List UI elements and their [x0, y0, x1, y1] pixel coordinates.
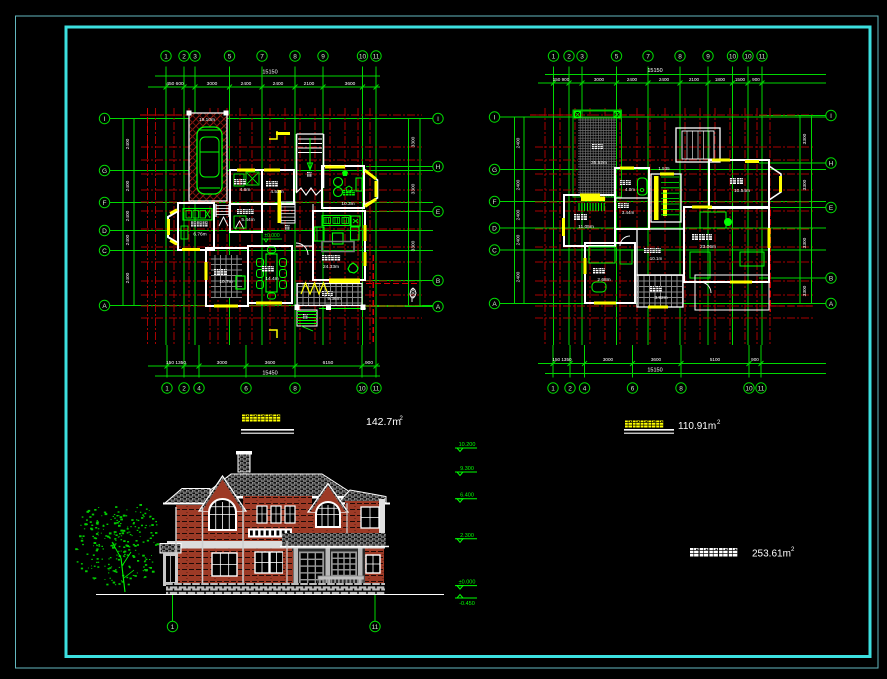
- svg-text:G: G: [102, 168, 107, 175]
- svg-text:19.10m: 19.10m: [199, 117, 215, 123]
- svg-text:I: I: [437, 116, 439, 123]
- svg-text:A: A: [102, 303, 107, 310]
- svg-text:-0.450: -0.450: [459, 601, 475, 607]
- svg-text:24.33m: 24.33m: [323, 264, 339, 270]
- svg-text:35.52m: 35.52m: [591, 160, 607, 166]
- svg-text:2400: 2400: [516, 179, 522, 190]
- svg-text:C: C: [492, 247, 497, 254]
- svg-text:14.4m: 14.4m: [265, 276, 278, 282]
- svg-text:1: 1: [165, 385, 169, 392]
- svg-text:1800: 1800: [715, 77, 726, 82]
- svg-text:2: 2: [182, 385, 186, 392]
- svg-text:10: 10: [729, 53, 737, 60]
- svg-text:B: B: [829, 275, 833, 282]
- svg-text:3000: 3000: [207, 81, 218, 87]
- svg-text:15150: 15150: [647, 68, 662, 74]
- svg-text:5100: 5100: [710, 357, 721, 362]
- svg-text:8: 8: [293, 53, 297, 60]
- svg-text:142.7m: 142.7m: [366, 416, 401, 428]
- svg-text:10.54m: 10.54m: [734, 188, 750, 194]
- svg-text:6.76m: 6.76m: [193, 232, 206, 238]
- svg-text:2: 2: [568, 385, 572, 392]
- svg-text:1: 1: [551, 385, 555, 392]
- svg-text:11: 11: [758, 385, 765, 392]
- svg-text:H: H: [436, 164, 441, 171]
- svg-text:2400: 2400: [516, 234, 522, 245]
- svg-text:10: 10: [358, 385, 366, 392]
- svg-text:2400: 2400: [125, 210, 131, 221]
- svg-text:4: 4: [197, 385, 201, 392]
- svg-text:4.6m: 4.6m: [240, 187, 251, 193]
- svg-text:2400: 2400: [125, 234, 131, 245]
- svg-text:3300: 3300: [802, 179, 808, 190]
- svg-text:5.44m: 5.44m: [241, 217, 254, 223]
- svg-text:3600: 3600: [345, 81, 356, 87]
- svg-text:4: 4: [583, 385, 587, 392]
- svg-text:900: 900: [751, 357, 759, 362]
- svg-text:7: 7: [646, 53, 650, 60]
- svg-text:1500: 1500: [735, 77, 746, 82]
- svg-text:1: 1: [552, 53, 556, 60]
- svg-text:3: 3: [580, 53, 584, 60]
- svg-text:I: I: [104, 116, 106, 123]
- svg-text:150 900: 150 900: [553, 77, 570, 82]
- svg-text:3300: 3300: [411, 240, 417, 251]
- svg-text:11: 11: [373, 385, 380, 392]
- svg-text:2: 2: [182, 53, 186, 60]
- svg-text:23.06m: 23.06m: [700, 244, 716, 250]
- svg-text:2400: 2400: [125, 272, 131, 283]
- svg-text:253.61m: 253.61m: [752, 549, 791, 560]
- svg-text:B: B: [436, 278, 440, 285]
- svg-text:2100: 2100: [304, 81, 315, 87]
- svg-text:8: 8: [293, 385, 297, 392]
- svg-text:D: D: [102, 228, 107, 235]
- svg-text:3000: 3000: [594, 77, 605, 82]
- svg-text:8: 8: [678, 53, 682, 60]
- svg-text:3600: 3600: [651, 357, 662, 362]
- svg-text:15150: 15150: [262, 70, 277, 76]
- svg-text:2400: 2400: [273, 81, 284, 87]
- svg-text:10.200: 10.200: [459, 442, 476, 448]
- svg-text:F: F: [493, 199, 497, 206]
- svg-text:H: H: [829, 160, 834, 167]
- svg-text:4.52m: 4.52m: [270, 189, 283, 195]
- svg-text:6.400: 6.400: [460, 493, 474, 499]
- svg-text:2400: 2400: [241, 81, 252, 87]
- svg-text:450 600: 450 600: [166, 81, 184, 87]
- svg-text:15150: 15150: [647, 368, 662, 374]
- svg-text:A: A: [492, 301, 497, 308]
- svg-text:6150: 6150: [323, 360, 334, 366]
- svg-text:900: 900: [365, 360, 373, 366]
- svg-text:I: I: [830, 113, 832, 120]
- svg-text:G: G: [492, 167, 497, 174]
- svg-text:3000: 3000: [603, 357, 614, 362]
- svg-text:150 1350: 150 1350: [552, 357, 572, 362]
- svg-text:10.1m: 10.1m: [650, 256, 663, 261]
- svg-text:10: 10: [745, 385, 753, 392]
- svg-text:3000: 3000: [217, 360, 228, 366]
- svg-text:5: 5: [615, 53, 619, 60]
- svg-text:3.44m: 3.44m: [622, 210, 635, 215]
- svg-text:5: 5: [228, 53, 232, 60]
- svg-text:6: 6: [631, 385, 635, 392]
- svg-text:D: D: [492, 225, 497, 232]
- svg-text:2400: 2400: [125, 138, 131, 149]
- svg-text:1: 1: [164, 53, 168, 60]
- svg-text:900: 900: [752, 77, 760, 82]
- svg-text:C: C: [102, 248, 107, 255]
- svg-text:A: A: [436, 304, 441, 311]
- svg-text:3: 3: [193, 53, 197, 60]
- svg-text:2400: 2400: [627, 77, 638, 82]
- svg-text:1: 1: [171, 624, 175, 631]
- svg-text:3300: 3300: [411, 183, 417, 194]
- svg-text:3600: 3600: [265, 360, 276, 366]
- svg-text:15450: 15450: [262, 371, 277, 377]
- svg-text:E: E: [436, 209, 441, 216]
- svg-text:I: I: [494, 114, 496, 121]
- svg-text:10.7m: 10.7m: [219, 279, 232, 285]
- svg-text:11: 11: [759, 53, 766, 60]
- svg-text:±0.000: ±0.000: [459, 580, 476, 586]
- svg-text:11: 11: [373, 53, 380, 60]
- svg-text:9: 9: [321, 53, 325, 60]
- svg-text:110.91m: 110.91m: [678, 421, 716, 432]
- svg-text:9.300: 9.300: [460, 466, 474, 472]
- svg-text:150 1350: 150 1350: [166, 360, 186, 366]
- svg-text:A: A: [829, 301, 834, 308]
- svg-text:2400: 2400: [659, 77, 670, 82]
- svg-text:2100: 2100: [689, 77, 700, 82]
- svg-text:3300: 3300: [802, 133, 808, 144]
- svg-text:2400: 2400: [516, 209, 522, 220]
- svg-text:2.300: 2.300: [460, 533, 474, 539]
- svg-text:2400: 2400: [516, 137, 522, 148]
- svg-text:4.0m: 4.0m: [625, 187, 635, 192]
- svg-text:10.3m: 10.3m: [341, 201, 354, 207]
- svg-text:11: 11: [372, 624, 379, 631]
- svg-text:2400: 2400: [516, 271, 522, 282]
- svg-text:10: 10: [744, 53, 752, 60]
- svg-text:F: F: [103, 200, 107, 207]
- svg-text:3300: 3300: [802, 237, 808, 248]
- svg-text:2: 2: [567, 53, 571, 60]
- svg-text:3300: 3300: [411, 136, 417, 147]
- svg-text:10: 10: [359, 53, 367, 60]
- svg-text:6: 6: [244, 385, 248, 392]
- svg-text:11.05m: 11.05m: [578, 224, 594, 230]
- svg-text:7: 7: [260, 53, 264, 60]
- svg-text:2400: 2400: [125, 180, 131, 191]
- svg-text:8: 8: [679, 385, 683, 392]
- svg-text:9.36m: 9.36m: [327, 296, 340, 302]
- svg-text:1.535: 1.535: [658, 166, 670, 171]
- svg-text:9: 9: [706, 53, 710, 60]
- svg-text:E: E: [829, 205, 834, 212]
- svg-text:3.92m: 3.92m: [654, 295, 667, 301]
- svg-text:±0.000: ±0.000: [264, 233, 279, 239]
- svg-text:3300: 3300: [802, 285, 808, 296]
